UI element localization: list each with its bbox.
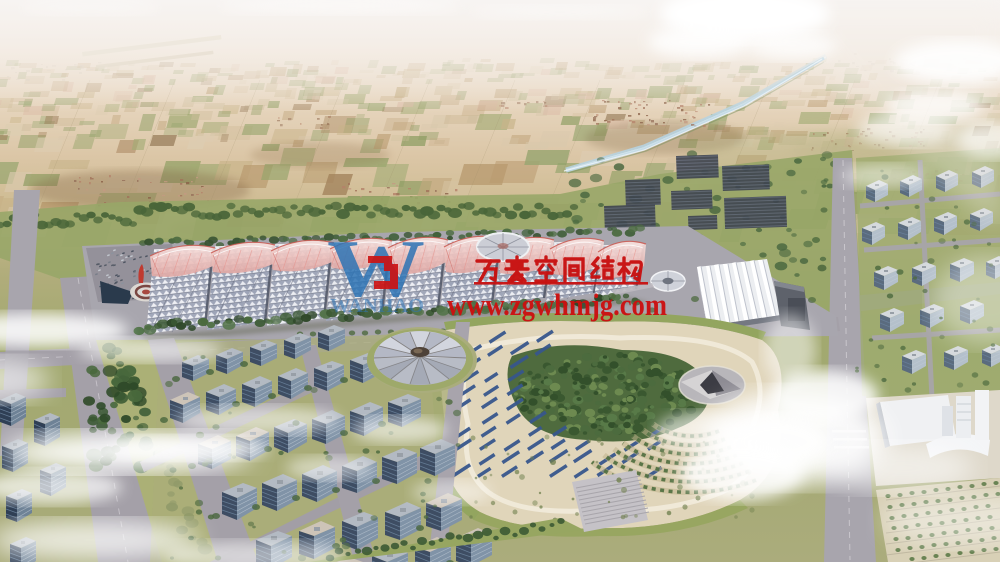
svg-text:WANHAO: WANHAO <box>330 295 424 317</box>
svg-text:www.zgwhmjg.com: www.zgwhmjg.com <box>447 287 667 322</box>
